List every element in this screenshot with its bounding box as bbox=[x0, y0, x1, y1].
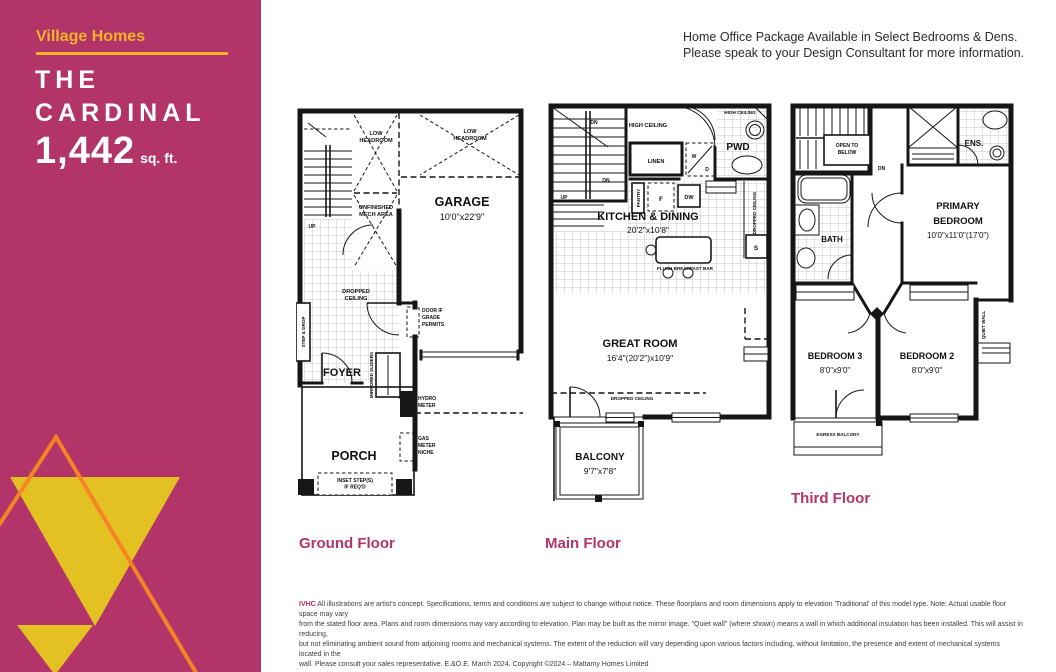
primary-bedroom-label-line2: BEDROOM bbox=[933, 216, 983, 227]
mirrored-sliders-closet bbox=[376, 353, 400, 397]
disclaimer-line: wall. Please consult your sales represen… bbox=[299, 660, 1023, 670]
balcony-label: BALCONY bbox=[575, 452, 625, 463]
brand-underline bbox=[36, 52, 228, 55]
flush-breakfast-bar-label: FLUSH BREAKFAST BAR bbox=[657, 266, 714, 271]
model-title-line2: CARDINAL bbox=[35, 97, 206, 130]
note-line1: Home Office Package Available in Select … bbox=[683, 29, 1024, 45]
kitchen-dining-label: KITCHEN & DINING bbox=[597, 211, 698, 223]
gas-meter-box bbox=[400, 433, 414, 461]
disclaimer-text-1: All illustrations are artist's concept. … bbox=[299, 601, 1006, 618]
bath-label: BATH bbox=[821, 235, 843, 244]
stairs-dn bbox=[552, 107, 626, 226]
note-line2: Please speak to your Design Consultant f… bbox=[683, 45, 1024, 61]
bedroom3-label: BEDROOM 3 bbox=[808, 351, 863, 361]
decorative-triangles bbox=[0, 400, 261, 672]
shelf-label: S bbox=[754, 245, 759, 252]
area-value: 1,442 bbox=[35, 130, 135, 172]
main-floor-caption: Main Floor bbox=[545, 535, 621, 552]
hydro-meter-label: HYDROMETER bbox=[418, 396, 436, 409]
disclaimer: IVHC All illustrations are artist's conc… bbox=[299, 600, 1023, 670]
home-office-note: Home Office Package Available in Select … bbox=[683, 29, 1024, 61]
ensuite-label: ENS. bbox=[965, 139, 984, 148]
disclaimer-prefix: IVHC bbox=[299, 601, 316, 608]
hydro-meter-box bbox=[400, 391, 414, 417]
ground-dropped-ceiling-label: DROPPEDCEILING bbox=[342, 289, 370, 302]
quiet-wall-label: QUIET WALL bbox=[981, 311, 986, 340]
great-room-dashes bbox=[551, 308, 768, 393]
ground-low-headroom-2-label: LOWHEADROOM bbox=[453, 129, 487, 142]
dryer-label: D bbox=[705, 167, 709, 173]
bedroom-closets bbox=[796, 285, 968, 300]
ground-floor-plan: LOWHEADROOM LOWHEADROOM GARAGE 10'0"x22'… bbox=[296, 107, 525, 504]
primary-bedroom-label-line1: PRIMARY bbox=[936, 201, 980, 212]
unfinished-mech-label: UNFINISHEDMECH AREA bbox=[359, 205, 393, 218]
floor-area: 1,442sq. ft. bbox=[35, 130, 177, 173]
model-title: THE CARDINAL bbox=[35, 64, 206, 130]
washer-dryer-box bbox=[686, 143, 714, 176]
great-room-label: GREAT ROOM bbox=[603, 338, 678, 350]
garage-label: GARAGE bbox=[435, 195, 490, 209]
quiet-wall-ledge bbox=[978, 343, 1010, 363]
porch-label: PORCH bbox=[331, 449, 376, 463]
disclaimer-line: but not eliminating ambient sound from a… bbox=[299, 640, 1023, 660]
high-ceiling-2-label: HIGH CEILING bbox=[724, 110, 756, 115]
pwd-label: PWD bbox=[726, 142, 749, 153]
main-dn1-label: DN bbox=[590, 120, 598, 126]
linen-closet bbox=[908, 106, 958, 159]
foyer-label: FOYER bbox=[323, 367, 361, 379]
ground-up-label: UP bbox=[309, 224, 317, 230]
primary-door bbox=[868, 193, 902, 227]
third-floor-plan: OPEN TOBELOW DN ENS. BATH PRIMARY BEDROO… bbox=[790, 103, 1014, 470]
disclaimer-line: IVHC All illustrations are artist's conc… bbox=[299, 600, 1023, 620]
disclaimer-line: from the stated floor area. Plans and ro… bbox=[299, 620, 1023, 640]
kitchen-dining-dims: 20'2"x10'8" bbox=[627, 225, 669, 235]
main-dropped-ceiling-label: DROPPED CEILING bbox=[611, 396, 654, 401]
high-ceiling-1-label: HIGH CEILING bbox=[629, 123, 667, 129]
linen-label: LINEN bbox=[648, 159, 665, 165]
pantry-label: PANTRY bbox=[636, 189, 641, 207]
bedroom3-dims: 8'0"x9'0" bbox=[820, 366, 851, 375]
great-room-dims: 16'4"(20'2")x10'9" bbox=[607, 353, 673, 363]
area-unit: sq. ft. bbox=[140, 150, 177, 166]
ground-floor-caption: Ground Floor bbox=[299, 535, 395, 552]
primary-bedroom-dims: 10'0"x11'0"(17'0") bbox=[927, 231, 989, 240]
gas-meter-label: GASMETERNICHE bbox=[418, 436, 436, 456]
fridge-label: F bbox=[659, 196, 663, 203]
model-title-line1: THE bbox=[35, 64, 206, 97]
stairs-open-below bbox=[796, 108, 870, 169]
main-dn2-label: DN bbox=[602, 178, 610, 184]
bedroom2-dims: 8'0"x9'0" bbox=[912, 366, 943, 375]
bedroom2-label: BEDROOM 2 bbox=[900, 351, 955, 361]
door-if-grade-label: DOOR IFGRADEPERMITS bbox=[422, 308, 445, 328]
main-floor-plan: DN DN UP HIGH CEILING HIGH CEILING PWD L… bbox=[548, 103, 772, 520]
egress-balcony-railing bbox=[794, 420, 882, 455]
step-drop-label: STEP & DROP bbox=[301, 316, 306, 347]
mirrored-sliders-label: MIRRORED SLIDERS bbox=[369, 352, 374, 398]
third-dn-label: DN bbox=[878, 166, 886, 172]
main-up-label: UP bbox=[561, 195, 569, 201]
open-to-below-label: OPEN TOBELOW bbox=[836, 143, 859, 156]
washer-label: W bbox=[692, 154, 697, 160]
brand-name: Village Homes bbox=[36, 28, 145, 46]
sidebar: Village Homes THE CARDINAL 1,442sq. ft. bbox=[0, 0, 261, 672]
egress-balcony-label: EGRESS BALCONY bbox=[816, 432, 859, 437]
dropped-ceiling-side-label: DROPPED CEILING bbox=[752, 191, 757, 234]
dishwasher-label: DW bbox=[684, 195, 694, 201]
stairs-up bbox=[304, 123, 352, 217]
garage-dims: 10'0"x22'9" bbox=[440, 212, 484, 222]
door-if-grade-swing bbox=[407, 307, 419, 337]
third-floor-caption: Third Floor bbox=[791, 490, 870, 507]
triangle-small-icon bbox=[17, 625, 93, 672]
balcony-dims: 9'7"x7'8" bbox=[584, 466, 616, 476]
